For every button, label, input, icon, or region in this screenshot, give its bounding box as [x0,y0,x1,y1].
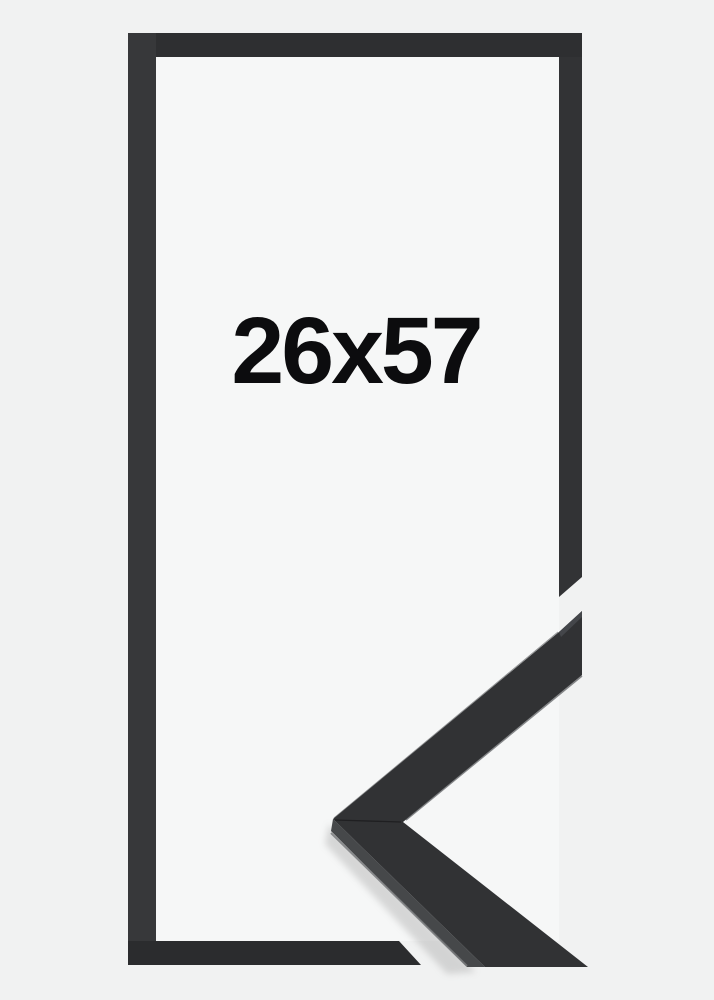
frame-left-bar [128,33,156,965]
size-label: 26x57 [231,298,480,404]
frame-product-illustration: 26x57 [0,0,714,1000]
frame-bottom-bar [128,941,421,965]
frame-right-bar [559,57,582,597]
frame-product-photo: 26x57 [0,0,714,1000]
frame-top-bar [128,33,582,57]
